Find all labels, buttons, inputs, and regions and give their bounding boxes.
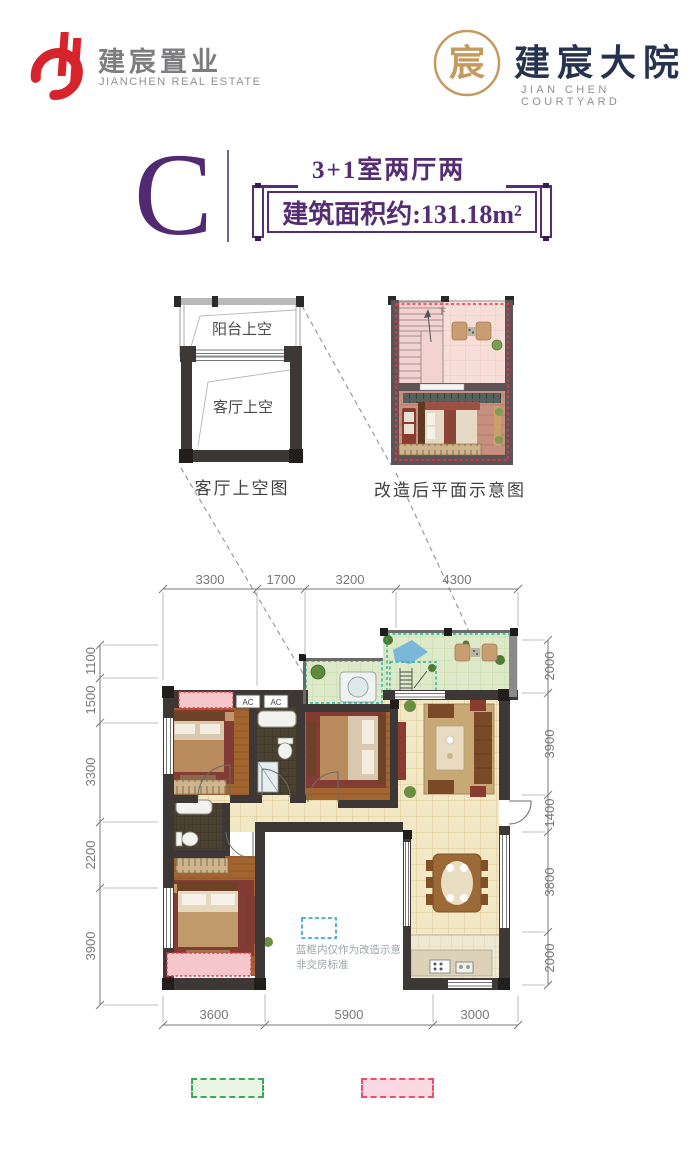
dim-top-4: 4300 — [443, 572, 472, 587]
bedroom2-furniture — [306, 710, 386, 788]
legend-renovation-swatch — [361, 1078, 434, 1098]
living-void-diagram: 阳台上空 客厅上空 客厅上空图 — [174, 296, 304, 498]
renovation-note: 蓝框内仅作为改造示意 非交房标准 — [296, 918, 401, 971]
note-line-2: 非交房标准 — [296, 958, 349, 971]
floorplan-poster: 建宸置业 JIANCHEN REAL ESTATE 宸 建宸大院 JIAN CH… — [0, 0, 700, 1166]
ac-label-1: AC — [242, 698, 253, 707]
legend-terrace-swatch — [191, 1078, 264, 1098]
dim-left-3: 3300 — [83, 758, 98, 787]
renovated-stairs-icon: 下 — [399, 302, 446, 384]
dim-left-4: 2200 — [83, 841, 98, 870]
balcony-void-label: 阳台上空 — [212, 321, 272, 338]
living-void-caption: 客厅上空图 — [195, 479, 290, 498]
dim-top-2: 1700 — [267, 572, 296, 587]
dim-bottom-3: 3000 — [461, 1007, 490, 1022]
main-floor-plan: AC AC 蓝框内仅作为改造示意 非交房标准 — [162, 628, 531, 990]
plan-canvas: 阳台上空 客厅上空 客厅上空图 — [0, 0, 700, 1166]
dim-right-3: 1400 — [542, 799, 557, 828]
dim-left-1: 1100 — [83, 647, 98, 675]
renovated-plan-caption: 改造后平面示意图 — [374, 481, 526, 500]
dim-right-5: 2000 — [542, 944, 557, 973]
dim-left-2: 1500 — [83, 686, 98, 715]
dim-top-1: 3300 — [196, 572, 225, 587]
dim-bottom-2: 5900 — [335, 1007, 364, 1022]
dim-bottom-1: 3600 — [200, 1007, 229, 1022]
dim-top-3: 3200 — [336, 572, 365, 587]
note-line-1: 蓝框内仅作为改造示意 — [296, 943, 401, 956]
bedroom1-furniture — [166, 710, 234, 794]
dim-left-5: 3900 — [83, 932, 98, 961]
dim-right-1: 2000 — [542, 652, 557, 681]
dim-right-4: 3800 — [542, 868, 557, 897]
stair-down-label: 下 — [438, 307, 446, 316]
living-void-label: 客厅上空 — [213, 399, 273, 416]
dim-right-2: 3900 — [542, 730, 557, 759]
ac-label-2: AC — [270, 698, 281, 707]
renovated-plan-diagram: 下 改造后平面示意图 — [374, 296, 526, 500]
